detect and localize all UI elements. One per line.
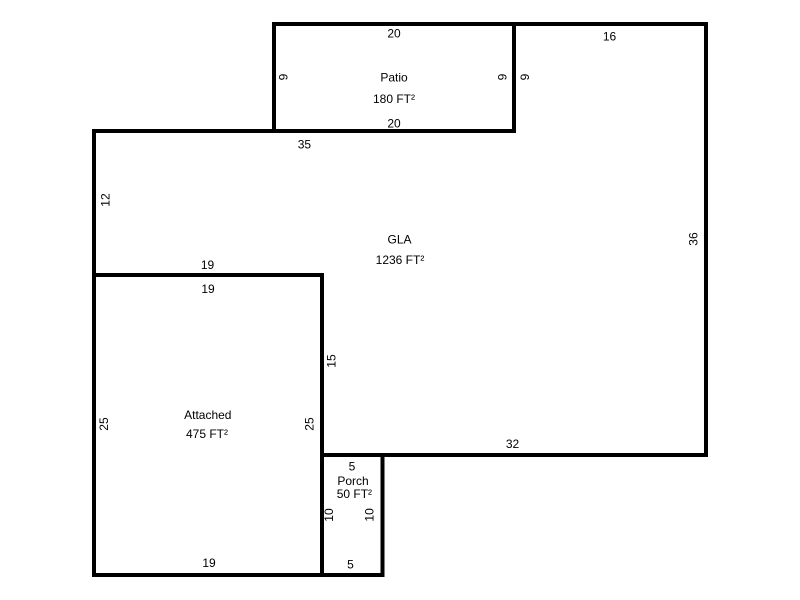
- svg-text:10: 10: [322, 508, 336, 522]
- svg-text:15: 15: [324, 354, 338, 368]
- svg-text:9: 9: [495, 73, 509, 80]
- svg-text:12: 12: [98, 193, 112, 207]
- svg-text:Porch: Porch: [337, 474, 368, 488]
- svg-text:475 FT²: 475 FT²: [186, 427, 228, 441]
- svg-text:5: 5: [347, 557, 354, 571]
- svg-text:35: 35: [298, 138, 312, 152]
- svg-text:19: 19: [202, 556, 216, 570]
- svg-text:GLA: GLA: [387, 233, 411, 247]
- svg-text:9: 9: [518, 73, 532, 80]
- svg-text:10: 10: [363, 508, 377, 522]
- svg-text:32: 32: [506, 437, 520, 451]
- svg-text:Attached: Attached: [184, 408, 231, 422]
- svg-text:25: 25: [302, 417, 316, 431]
- svg-text:25: 25: [97, 417, 111, 431]
- svg-text:36: 36: [686, 232, 700, 246]
- svg-text:50 FT²: 50 FT²: [337, 487, 372, 501]
- svg-text:9: 9: [276, 73, 290, 80]
- svg-text:20: 20: [387, 26, 401, 40]
- svg-text:16: 16: [603, 30, 617, 44]
- svg-text:5: 5: [349, 460, 356, 474]
- svg-text:20: 20: [387, 117, 401, 131]
- svg-text:1236 FT²: 1236 FT²: [376, 253, 425, 267]
- svg-text:180 FT²: 180 FT²: [373, 92, 415, 106]
- svg-text:19: 19: [201, 258, 215, 272]
- svg-text:19: 19: [201, 282, 215, 296]
- svg-text:Patio: Patio: [380, 70, 408, 84]
